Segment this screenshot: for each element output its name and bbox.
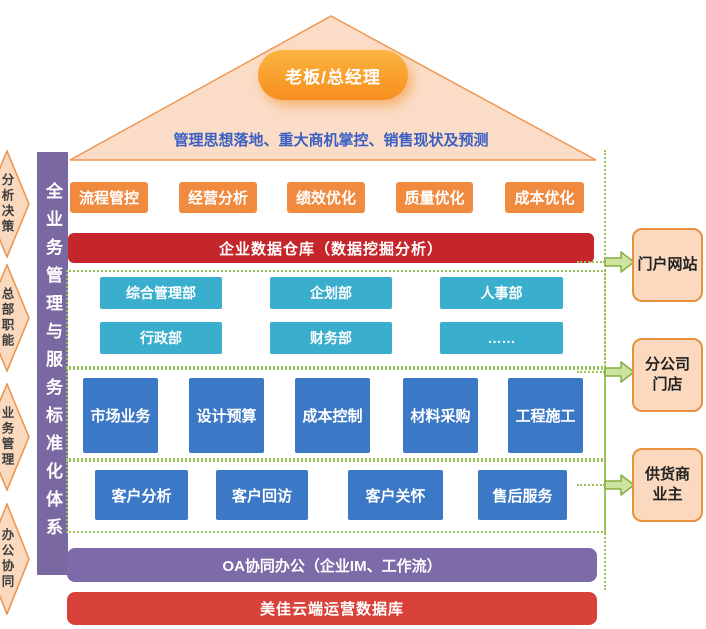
- cloud-database-bar: 美佳云端运营数据库: [67, 592, 597, 625]
- customer-box-care: 客户关怀: [348, 470, 443, 520]
- strategy-box-performance-optimization: 绩效优化: [287, 182, 365, 213]
- tag-headquarters-function: 总部职能: [0, 264, 30, 372]
- strategy-box-cost-optimization: 成本优化: [505, 182, 584, 213]
- strategy-box-quality-optimization: 质量优化: [396, 182, 473, 213]
- department-box-more: ……: [440, 322, 563, 354]
- strategy-box-process-control: 流程管控: [70, 182, 148, 213]
- tag-label: 业务管理: [0, 406, 17, 468]
- roof-subtitle: 管理思想落地、重大商机掌控、销售现状及预测: [90, 129, 572, 150]
- business-box-design-budget: 设计预算: [189, 378, 264, 453]
- business-box-construction: 工程施工: [508, 378, 583, 453]
- business-box-material-purchase: 材料采购: [403, 378, 478, 453]
- strategy-box-operation-analysis: 经营分析: [179, 182, 257, 213]
- department-box-administration: 行政部: [100, 322, 222, 354]
- connector-line: [577, 261, 605, 263]
- department-box-planning: 企划部: [270, 277, 392, 309]
- customer-box-after-sales: 售后服务: [478, 470, 567, 520]
- target-box-suppliers-owners: 供货商 业主: [632, 448, 703, 522]
- connector-line: [577, 484, 605, 486]
- target-box-portal-website: 门户网站: [632, 228, 703, 302]
- sidebar-bar: 全业务管理与服务标准化体系: [37, 152, 68, 575]
- tag-business-management: 业务管理: [0, 383, 30, 491]
- department-box-hr: 人事部: [440, 277, 563, 309]
- target-box-branch-stores: 分公司 门店: [632, 338, 703, 412]
- department-box-finance: 财务部: [270, 322, 392, 354]
- customer-box-callback: 客户回访: [216, 470, 308, 520]
- department-box-general-management: 综合管理部: [100, 277, 222, 309]
- boss-badge: 老板/总经理: [258, 50, 408, 100]
- business-box-cost-control: 成本控制: [295, 378, 370, 453]
- tag-label: 办公协同: [0, 528, 17, 590]
- connector-line: [577, 371, 605, 373]
- oa-collaboration-bar: OA协同办公（企业IM、工作流）: [67, 548, 597, 582]
- tag-label: 总部职能: [0, 287, 17, 349]
- sidebar-label: 全业务管理与服务标准化体系: [40, 182, 65, 546]
- data-warehouse-bar: 企业数据仓库（数据挖掘分析）: [68, 233, 594, 263]
- tag-label: 分析决策: [0, 173, 17, 235]
- customer-box-analysis: 客户分析: [95, 470, 188, 520]
- tag-office-collaboration: 办公协同: [0, 503, 30, 615]
- business-box-market: 市场业务: [83, 378, 158, 453]
- tag-analysis-decision: 分析决策: [0, 150, 30, 258]
- diagram-canvas: 老板/总经理 管理思想落地、重大商机掌控、销售现状及预测 全业务管理与服务标准化…: [0, 0, 706, 629]
